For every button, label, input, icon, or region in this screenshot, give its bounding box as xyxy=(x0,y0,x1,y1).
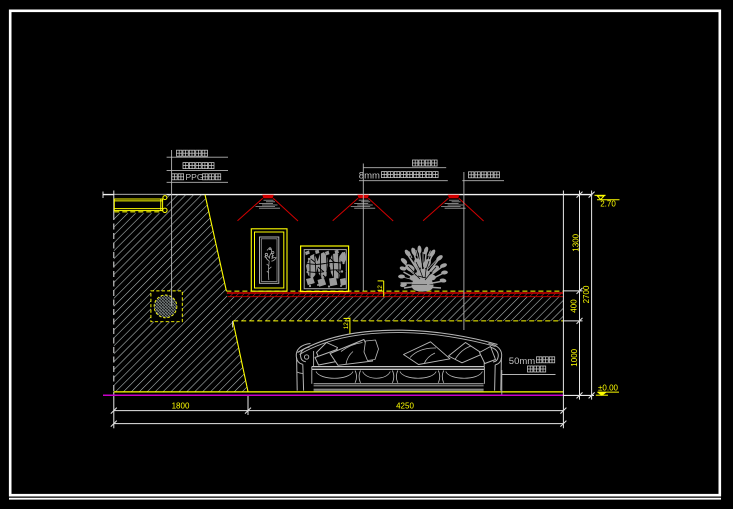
svg-text:50mm: 50mm xyxy=(509,356,535,367)
svg-text:PPG: PPG xyxy=(186,172,204,182)
svg-text:1800: 1800 xyxy=(172,401,190,410)
svg-text:12: 12 xyxy=(377,285,384,292)
svg-text:400: 400 xyxy=(569,299,578,313)
svg-text:4250: 4250 xyxy=(396,401,414,410)
svg-text:1300: 1300 xyxy=(571,233,580,251)
svg-text:±0.00: ±0.00 xyxy=(598,383,619,392)
svg-text:1000: 1000 xyxy=(570,348,579,366)
svg-text:8mm: 8mm xyxy=(359,171,380,182)
svg-text:2.70: 2.70 xyxy=(600,200,616,209)
svg-text:12: 12 xyxy=(343,322,350,329)
svg-text:2700: 2700 xyxy=(582,285,591,303)
